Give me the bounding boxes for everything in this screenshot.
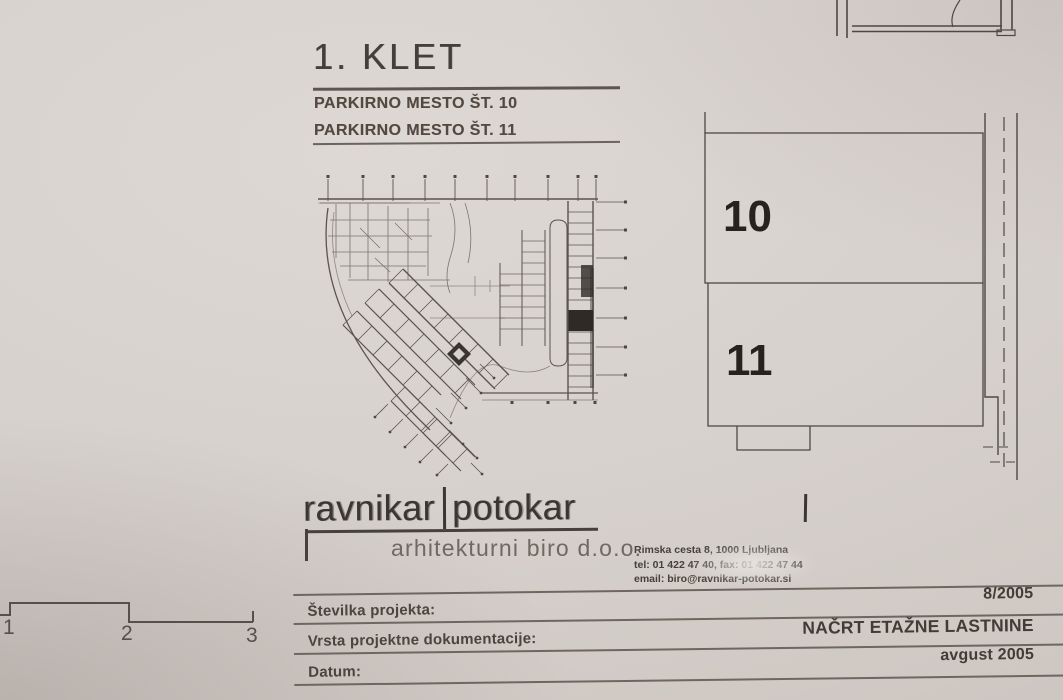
stair-core (447, 342, 471, 366)
highlighted-stall (569, 310, 594, 331)
parking-subtitle-1: PARKIRNO MESTO ŠT. 10 (314, 95, 517, 113)
date-value: avgust 2005 (940, 646, 1034, 665)
document-scan: 1. KLET PARKIRNO MESTO ŠT. 10 PARKIRNO M… (0, 0, 1063, 700)
door-swing-arc (952, 0, 960, 27)
wall-lines-right (983, 113, 1017, 480)
scale-label-1: 1 (3, 616, 15, 639)
drawing-title: 1. KLET (313, 36, 464, 78)
column-notch (737, 426, 810, 450)
phone-line: tel: 01 422 47 40, fax: 01 422 47 44 (634, 558, 803, 573)
parking-subtitle-2: PARKIRNO MESTO ŠT. 11 (314, 122, 517, 140)
wall-fragment-top-right (820, 0, 1063, 52)
space-10-number: 10 (723, 192, 772, 241)
title-block: 8/2005 Številka projekta: NAČRT ETAŽNE L… (293, 575, 1063, 700)
space-11-number: 11 (726, 336, 773, 385)
architect-logo: ravnikarpotokar (303, 486, 576, 529)
titleblock-line (293, 585, 1063, 596)
logo-subtitle: arhitekturni biro d.o.o. (391, 535, 642, 562)
diagonal-stall-fan (343, 269, 509, 471)
logo-bracket (305, 529, 308, 561)
titleblock-line (294, 675, 1063, 686)
grid-ticks-top (327, 175, 598, 201)
fold-mark (804, 494, 807, 522)
project-number-label: Številka projekta: (307, 601, 435, 620)
logo-name-right: potokar (452, 486, 576, 528)
project-number-value: 8/2005 (983, 585, 1033, 604)
middle-stall-column (500, 230, 545, 346)
scale-bar: 1 2 3 (0, 594, 270, 654)
date-label: Datum: (308, 663, 361, 681)
leader-ticks (374, 364, 496, 476)
garage-floor-plan (300, 168, 630, 498)
scale-label-3: 3 (246, 624, 258, 647)
logo-name-left: ravnikar (303, 487, 435, 529)
grid-ticks-right (596, 201, 627, 377)
address-line: Rimska cesta 8, 1000 Ljubljana (634, 543, 803, 558)
logo-separator-bar (443, 487, 446, 529)
scale-label-2: 2 (121, 622, 133, 645)
title-underline (313, 86, 620, 90)
upper-left-rooms (320, 203, 510, 318)
right-stall-column (568, 201, 594, 400)
parking-spaces-detail: 10 11 (695, 95, 1063, 485)
drive-aisle-loop (550, 220, 567, 366)
highlighted-stall-upper (581, 265, 593, 297)
subtitle-underline (313, 141, 620, 145)
documentation-type-label: Vrsta projektne dokumentacije: (308, 630, 537, 650)
documentation-type-value: NAČRT ETAŽNE LASTNINE (802, 615, 1034, 639)
